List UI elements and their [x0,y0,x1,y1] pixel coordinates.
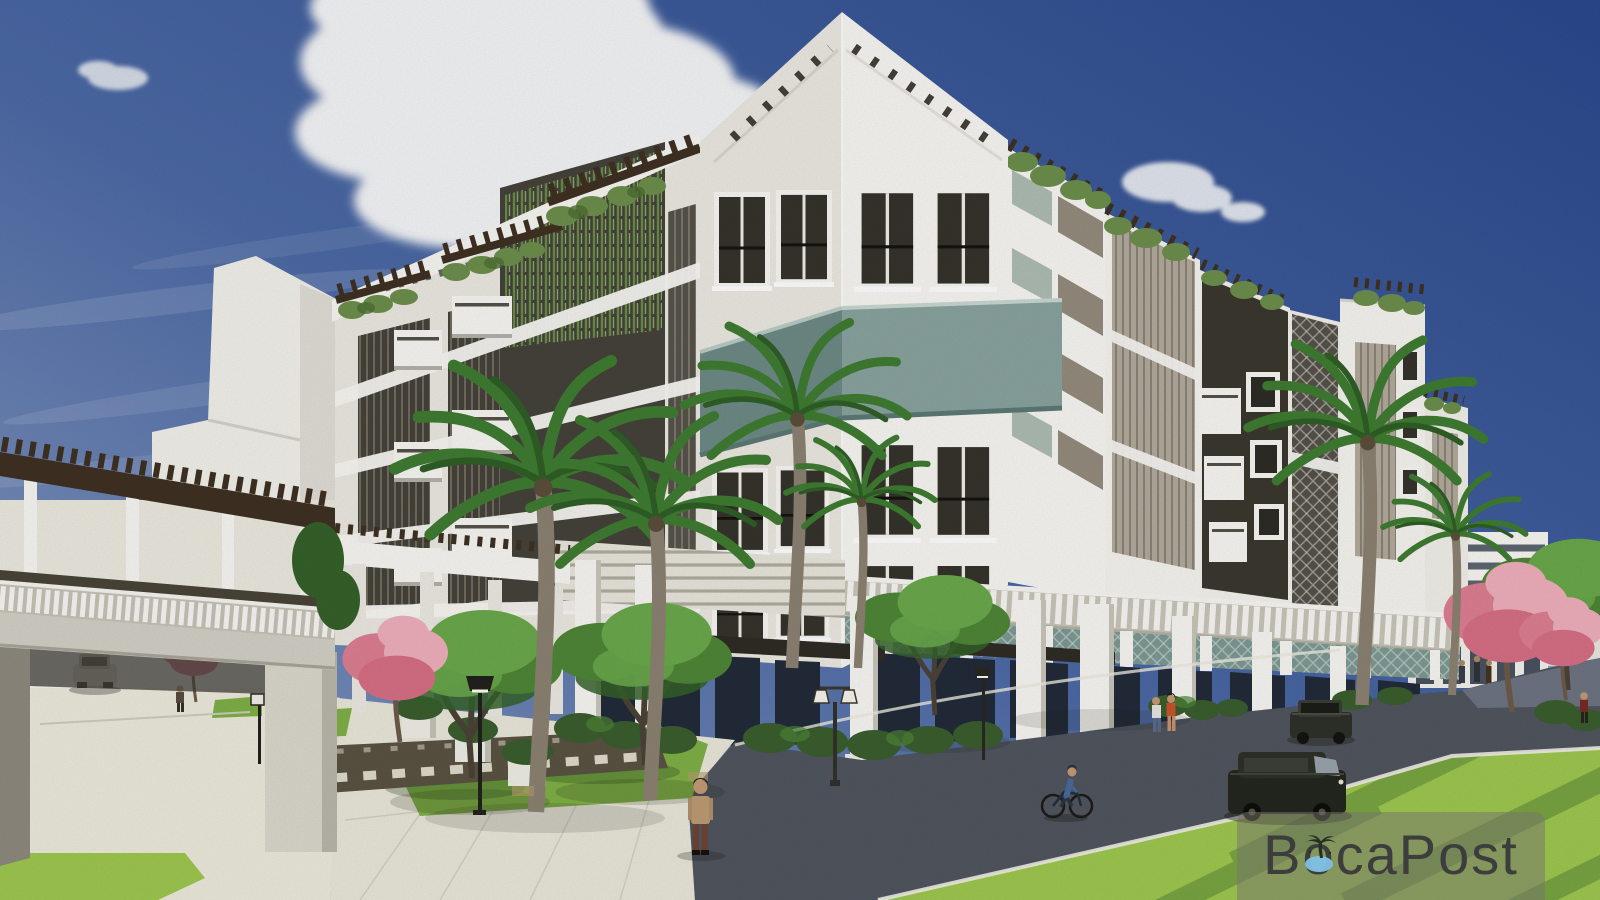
rendering-image: Blue sky, deeper at top right Large whit… [0,0,1600,900]
watermark-text: BocaPost [1263,823,1519,886]
watermark: BocaPost [1237,812,1545,900]
scan-grain [0,0,1600,900]
